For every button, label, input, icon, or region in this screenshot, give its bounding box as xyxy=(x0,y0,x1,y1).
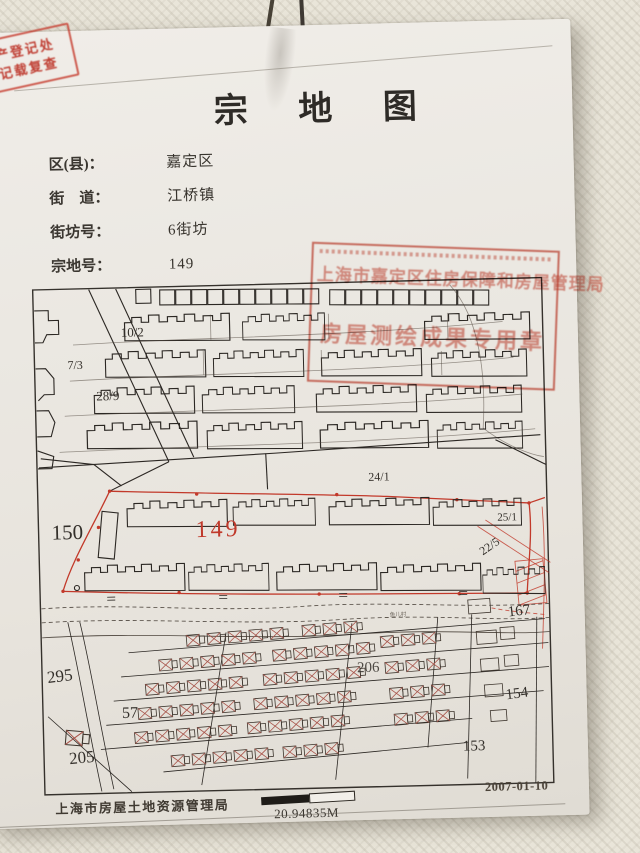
field-value: 6街坊 xyxy=(140,218,209,241)
subject-parcel-label-149: 149 xyxy=(195,516,241,543)
lot-label-153: 153 xyxy=(463,738,486,755)
lot-label-154: 154 xyxy=(505,684,530,703)
lot-label-205: 205 xyxy=(68,747,95,768)
field-value: 149 xyxy=(141,256,195,274)
field-district: 区(县)： 嘉定区 xyxy=(48,150,215,188)
scale-bar-filled xyxy=(261,794,309,805)
scale-bar xyxy=(261,791,357,806)
stream-band xyxy=(41,596,550,645)
page-title: 宗 地 图 xyxy=(152,77,493,134)
lot-label-7-3: 7/3 xyxy=(67,358,83,372)
lot-label-57: 57 xyxy=(122,705,138,722)
field-block-number: 街坊号： 6街坊 xyxy=(50,218,217,256)
field-label: 区(县)： xyxy=(48,151,134,174)
map-date: 2007-01-10 xyxy=(485,779,549,796)
lot-label-10-2: 10/2 xyxy=(121,324,144,340)
issuing-agency: 上海市房屋土地资源管理局 xyxy=(55,794,229,817)
field-parcel-number: 宗地号： 149 xyxy=(51,251,218,289)
photo-scene: 产登记处 记载复查 宗 地 图 区(县)： 嘉定区 街 道： 江桥镇 街坊号： … xyxy=(0,0,640,853)
lot-label-206: 206 xyxy=(357,660,380,677)
field-label: 街坊号： xyxy=(50,219,136,242)
parcel-map-sheet: 产登记处 记载复查 宗 地 图 区(县)： 嘉定区 街 道： 江桥镇 街坊号： … xyxy=(0,19,590,829)
field-label: 街 道： xyxy=(49,185,135,208)
scale-bar-outline xyxy=(309,791,356,804)
adjacent-structures xyxy=(34,310,62,469)
field-label: 宗地号： xyxy=(51,253,137,276)
field-value: 嘉定区 xyxy=(138,150,215,173)
official-red-seal: 上海市嘉定区住房保障和房屋管理局 房屋测绘成果专用章 xyxy=(307,242,560,391)
field-street: 街 道： 江桥镇 xyxy=(49,184,216,222)
parcel-info-fields: 区(县)： 嘉定区 街 道： 江桥镇 街坊号： 6街坊 宗地号： 149 xyxy=(48,150,217,290)
village-name-label: 鱼儿村 xyxy=(390,610,407,618)
village-houses xyxy=(62,618,455,769)
road-label-24-1: 24/1 xyxy=(368,469,390,484)
registry-corner-stamp: 产登记处 记载复查 xyxy=(0,22,80,95)
seal-line1: 上海市嘉定区住房保障和房屋管理局 xyxy=(316,260,553,294)
apartment-buildings-parcel-149 xyxy=(72,492,545,605)
lot-label-167: 167 xyxy=(507,602,532,620)
lot-label-28-9: 28/9 xyxy=(96,388,119,404)
seal-line2: 房屋测绘成果专用章 xyxy=(314,316,551,357)
lot-label-22-5: 22/5 xyxy=(477,534,503,558)
lot-label-150: 150 xyxy=(51,520,83,545)
field-value: 江桥镇 xyxy=(139,184,216,207)
village-streets xyxy=(46,611,552,795)
lot-label-295: 295 xyxy=(46,665,74,687)
red-hatch-area xyxy=(515,559,547,605)
lot-label-25-1: 25/1 xyxy=(497,511,517,523)
